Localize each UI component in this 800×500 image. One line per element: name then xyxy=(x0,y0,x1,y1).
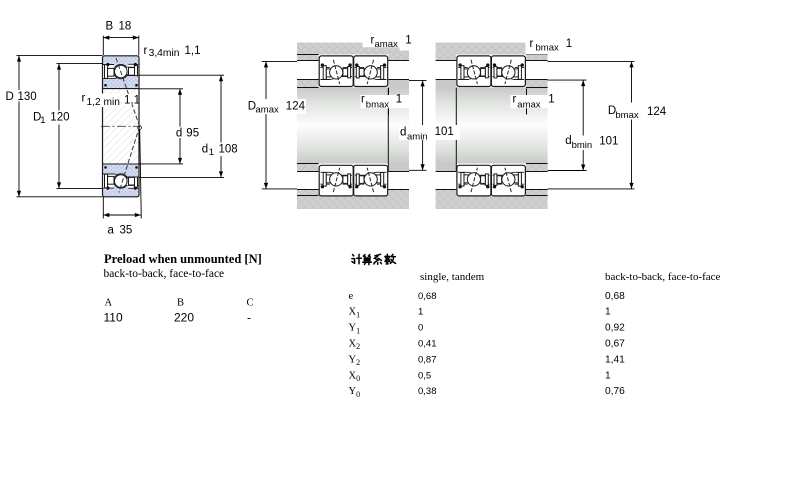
svg-text:bmin: bmin xyxy=(572,140,593,151)
svg-text:108: 108 xyxy=(219,143,238,155)
svg-text:1,1: 1,1 xyxy=(124,94,140,106)
svg-text:1: 1 xyxy=(548,93,554,105)
svg-text:120: 120 xyxy=(50,112,69,124)
svg-text:bmax: bmax xyxy=(536,43,559,54)
svg-text:back-to-back, face-to-face: back-to-back, face-to-face xyxy=(605,271,721,283)
svg-text:d: d xyxy=(202,143,208,155)
svg-text:1: 1 xyxy=(396,93,402,105)
svg-text:B: B xyxy=(106,21,114,33)
svg-text:d: d xyxy=(400,126,406,138)
svg-text:1,2 min: 1,2 min xyxy=(87,97,120,108)
svg-text:amax: amax xyxy=(256,105,279,116)
svg-text:0,67: 0,67 xyxy=(605,339,625,350)
svg-text:1: 1 xyxy=(418,307,423,318)
svg-text:a: a xyxy=(108,225,115,237)
svg-text:0,87: 0,87 xyxy=(418,354,437,365)
svg-text:124: 124 xyxy=(647,106,667,118)
svg-text:bmax: bmax xyxy=(615,110,638,121)
svg-text:Y0: Y0 xyxy=(349,386,361,399)
svg-text:0,92: 0,92 xyxy=(605,323,625,334)
svg-text:0,68: 0,68 xyxy=(605,291,625,302)
svg-text:101: 101 xyxy=(435,126,454,138)
svg-text:1,41: 1,41 xyxy=(605,354,625,365)
svg-text:0,76: 0,76 xyxy=(605,386,625,397)
svg-text:d: d xyxy=(176,127,182,139)
svg-text:Y2: Y2 xyxy=(349,354,361,367)
svg-text:101: 101 xyxy=(599,135,618,147)
svg-text:220: 220 xyxy=(174,310,194,324)
svg-text:e: e xyxy=(349,291,354,302)
svg-text:X2: X2 xyxy=(349,339,361,352)
svg-text:bmax: bmax xyxy=(366,99,389,110)
svg-text:1: 1 xyxy=(405,34,411,46)
svg-text:amax: amax xyxy=(517,99,540,110)
svg-text:1: 1 xyxy=(209,147,214,158)
svg-text:back-to-back, face-to-face: back-to-back, face-to-face xyxy=(104,268,225,280)
svg-text:B: B xyxy=(177,298,184,309)
svg-text:0,38: 0,38 xyxy=(418,386,437,397)
svg-text:r: r xyxy=(513,94,517,106)
svg-text:Preload when unmounted [N]: Preload when unmounted [N] xyxy=(104,252,262,266)
svg-text:1,1: 1,1 xyxy=(185,45,201,57)
svg-text:r: r xyxy=(82,92,86,104)
svg-text:r: r xyxy=(361,94,365,106)
svg-text:1: 1 xyxy=(605,370,611,381)
svg-text:95: 95 xyxy=(186,127,199,139)
svg-text:110: 110 xyxy=(104,310,123,324)
svg-text:0,5: 0,5 xyxy=(418,370,431,381)
svg-text:0,41: 0,41 xyxy=(418,339,437,350)
svg-text:-: - xyxy=(247,310,251,324)
svg-text:C: C xyxy=(247,298,254,309)
svg-text:1: 1 xyxy=(40,115,45,126)
svg-text:Y1: Y1 xyxy=(349,323,361,336)
svg-text:18: 18 xyxy=(119,21,132,33)
svg-text:single, tandem: single, tandem xyxy=(420,271,485,283)
svg-text:r: r xyxy=(144,45,148,57)
svg-text:124: 124 xyxy=(286,101,306,113)
svg-text:amax: amax xyxy=(375,39,398,50)
svg-text:A: A xyxy=(105,298,113,309)
svg-text:D: D xyxy=(6,91,14,103)
svg-text:35: 35 xyxy=(120,225,133,237)
svg-text:0,68: 0,68 xyxy=(418,291,437,302)
svg-text:1: 1 xyxy=(566,38,572,50)
svg-text:1: 1 xyxy=(605,307,611,318)
svg-text:r: r xyxy=(530,38,534,50)
svg-text:amin: amin xyxy=(407,132,428,143)
svg-text:X1: X1 xyxy=(349,307,361,320)
svg-text:0: 0 xyxy=(418,323,423,334)
svg-text:130: 130 xyxy=(18,91,37,103)
svg-text:X0: X0 xyxy=(349,370,361,383)
svg-text:3,4min: 3,4min xyxy=(149,48,180,59)
